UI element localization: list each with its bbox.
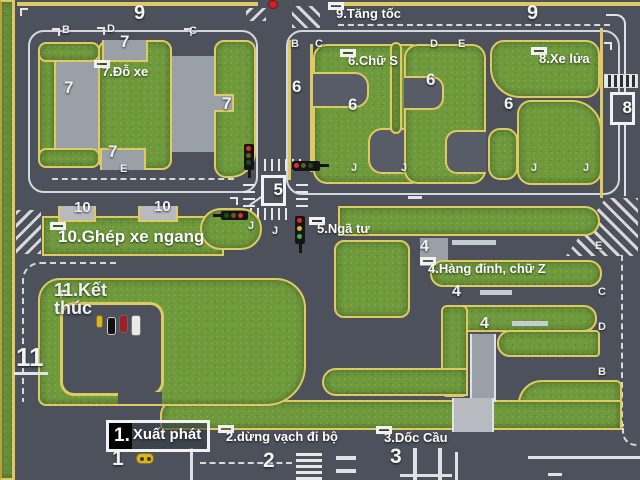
course-letter: D (107, 24, 115, 35)
station-box-intersection: 5 (261, 175, 286, 206)
station-label-parking: 7.Đỗ xe (94, 60, 110, 68)
driving-course-map: 7.Đỗ xe 6.Chữ S 8.Xe lửa 8 5 5.Ngã tư (0, 0, 640, 480)
red-light (294, 163, 299, 168)
spike-strip (512, 321, 548, 326)
station-label-railway: 8.Xe lửa (531, 47, 547, 55)
green-light (308, 163, 313, 168)
course-letter: C (315, 39, 323, 50)
course-number: 2 (263, 450, 275, 471)
station-label-bridge: 3.Dốc Cầu (376, 426, 392, 434)
course-letter: C (598, 287, 606, 298)
start-text: Xuất phát (132, 423, 207, 449)
course-number: 4 (480, 316, 489, 332)
green-light (224, 213, 229, 218)
course-number: 6 (348, 96, 357, 113)
station-label-accelerate: 9.Tăng tốc (328, 2, 344, 10)
course-letter: D (598, 322, 606, 333)
course-number: 6 (504, 95, 513, 112)
course-letter: J (248, 221, 254, 232)
course-letter: B (62, 25, 70, 36)
red-light (246, 146, 251, 151)
yellow-light (231, 213, 236, 218)
course-letter: J (583, 163, 589, 174)
parked-car-red (119, 315, 128, 333)
station-label-scurve: 6.Chữ S (340, 49, 356, 57)
yellow-light (301, 163, 306, 168)
course-number: 4 (420, 239, 429, 255)
parked-car-black (107, 317, 116, 335)
spike-strip (480, 290, 512, 295)
course-letter: B (598, 367, 606, 378)
course-number: 6 (292, 78, 301, 95)
traffic-light-vertical (295, 216, 305, 244)
traffic-light-horizontal (292, 161, 320, 171)
corner-tick (604, 42, 612, 50)
course-number: 9 (527, 3, 538, 23)
course-letter: J (351, 163, 357, 174)
parked-car-white (131, 315, 141, 336)
car-window (140, 457, 144, 461)
course-letter: C (189, 26, 197, 37)
red-light (238, 213, 243, 218)
corner-tick (230, 197, 238, 205)
red-light (297, 218, 302, 223)
course-number: 7 (64, 79, 73, 96)
station-label-parallel: 10.Ghép xe ngang (50, 222, 66, 230)
traffic-light-pole (320, 164, 329, 167)
course-number: 6 (426, 71, 435, 88)
course-letter: E (458, 39, 465, 50)
course-letter: J (531, 163, 537, 174)
course-number: 7 (108, 143, 117, 160)
course-number: 3 (390, 446, 402, 467)
station-label-start: 1. Xuất phát (106, 420, 210, 452)
course-letter: B (291, 39, 299, 50)
course-letter: E (120, 164, 127, 175)
course-letter: D (430, 39, 438, 50)
traffic-light-horizontal (221, 211, 248, 220)
signal-red-lamp (268, 0, 278, 9)
corner-tick (97, 27, 105, 35)
course-letter: J (272, 226, 278, 237)
bridge-deck (452, 398, 494, 432)
traffic-light-vertical (244, 144, 254, 170)
start-car (136, 453, 154, 464)
bridge-ramp (470, 334, 496, 402)
course-letter: E (595, 241, 602, 252)
course-number: 4 (452, 284, 461, 300)
station-label-crosswalk: 2.dừng vạch đi bộ (218, 425, 234, 433)
station-label-intersection: 5.Ngã tư (309, 217, 325, 225)
station-box-railway: 8 (610, 92, 635, 125)
green-light (297, 234, 302, 239)
course-number: 7 (222, 95, 231, 112)
course-number: 7 (120, 33, 129, 50)
spike-strip (452, 240, 496, 245)
pocket-opening (118, 392, 162, 404)
green-light (246, 160, 251, 165)
corner-tick (20, 8, 28, 16)
course-letter: J (401, 163, 407, 174)
yellow-light (297, 226, 302, 231)
station-label-zigzag: 4.Hàng đinh, chữ Z (420, 257, 436, 265)
traffic-light-pole (299, 244, 302, 253)
car-window (147, 457, 151, 461)
course-number: 9 (134, 3, 145, 23)
start-number: 1. (109, 423, 132, 449)
traffic-light-pole (248, 170, 251, 178)
corner-tick (52, 28, 60, 36)
course-number: 10 (154, 199, 171, 214)
course-number: 10 (74, 200, 91, 215)
yellow-light (246, 153, 251, 158)
traffic-light-pole (213, 214, 221, 217)
